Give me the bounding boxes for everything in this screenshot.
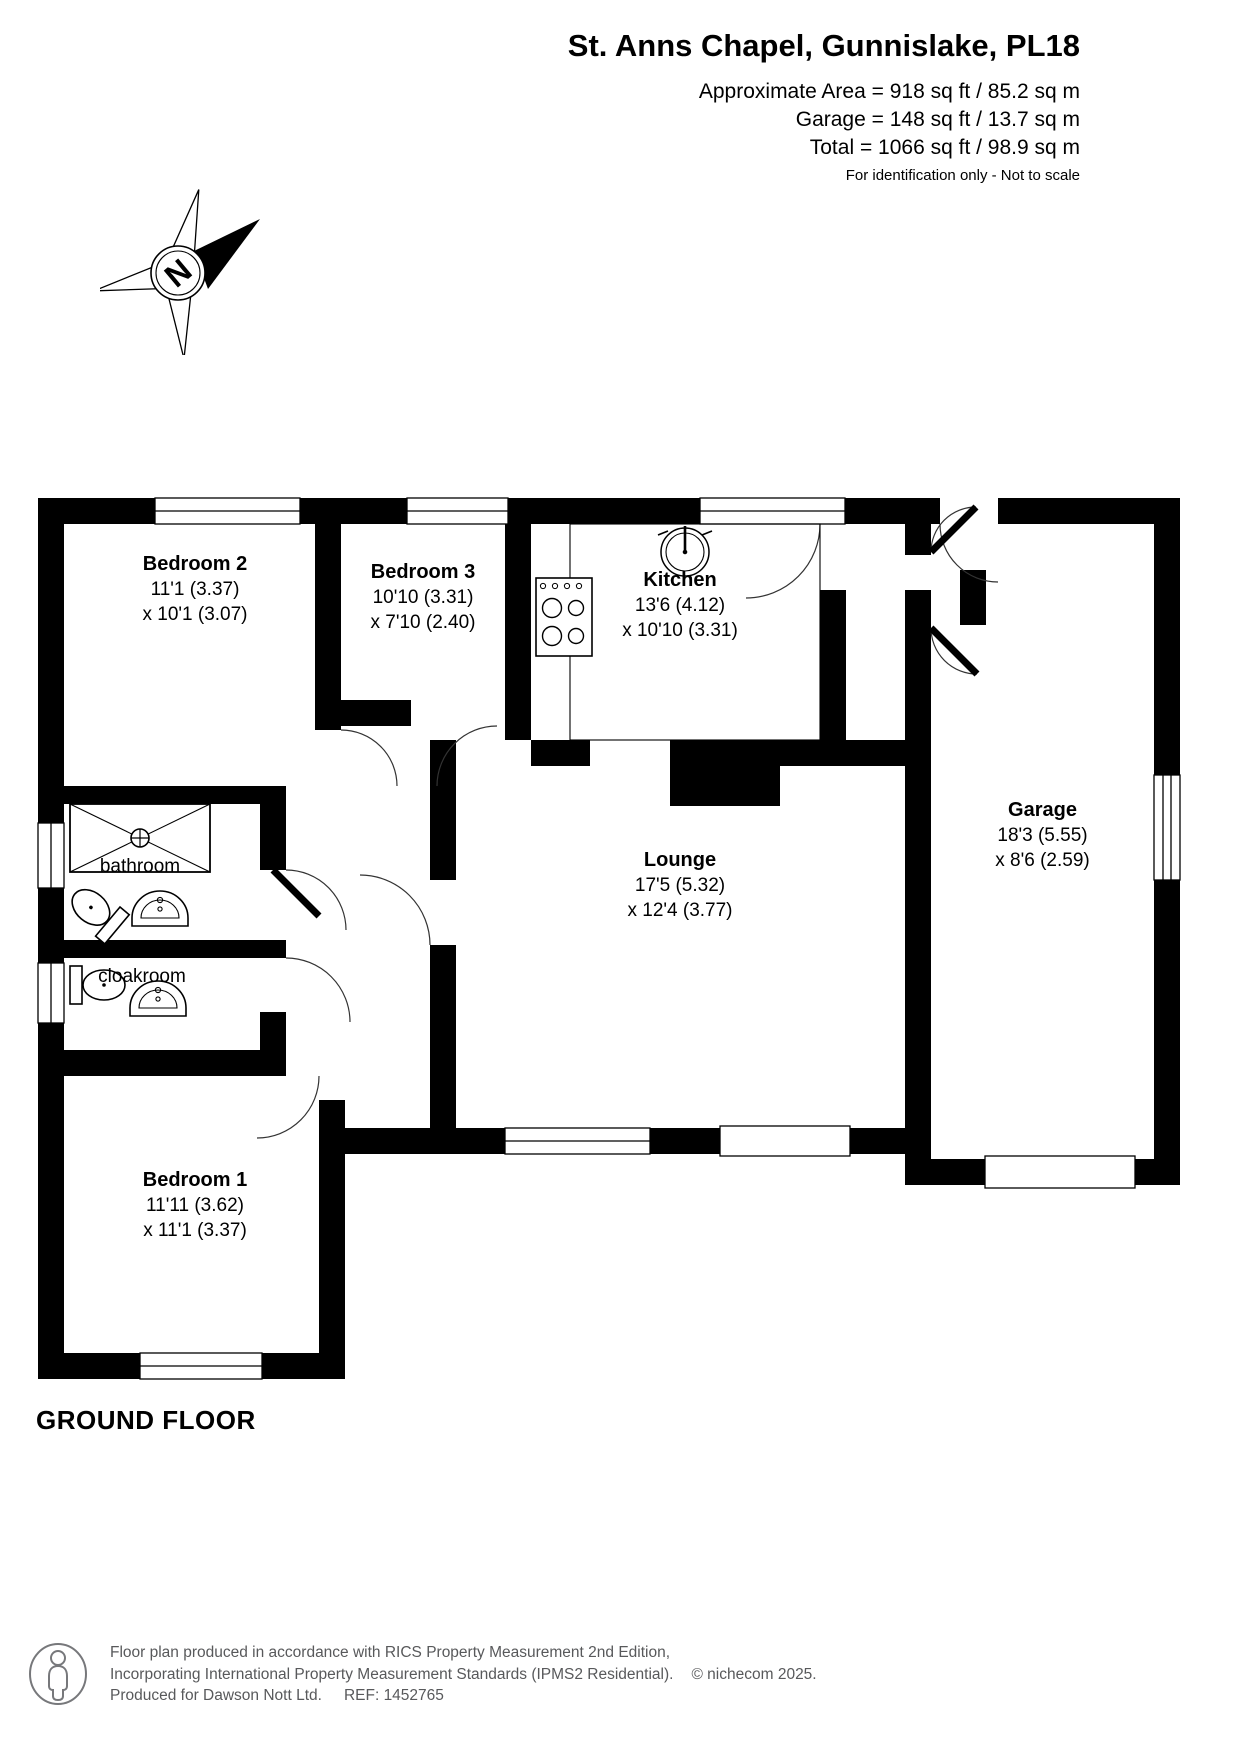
room-label-bathroom: bathroom (60, 856, 220, 878)
copyright: © nichecom 2025. (691, 1666, 816, 1683)
compass-point-west (100, 267, 157, 301)
window (505, 1128, 650, 1154)
compass-icon: N (100, 185, 270, 355)
garage-area: Garage = 148 sq ft / 13.7 sq m (380, 106, 1080, 134)
room-label-lounge: Lounge 17'5 (5.32) x 12'4 (3.77) (540, 848, 820, 923)
compass-point-north (173, 187, 209, 252)
door-arc (257, 1076, 319, 1138)
room-label-kitchen: Kitchen 13'6 (4.12) x 10'10 (3.31) (550, 568, 810, 643)
room-label-cloakroom: cloakroom (62, 966, 222, 988)
total-area: Total = 1066 sq ft / 98.9 sq m (380, 134, 1080, 162)
room-label-bedroom2: Bedroom 2 11'1 (3.37) x 10'1 (3.07) (75, 552, 315, 627)
floor-label: GROUND FLOOR (36, 1405, 256, 1436)
room-label-bedroom3: Bedroom 3 10'10 (3.31) x 7'10 (2.40) (313, 560, 533, 635)
window (407, 498, 508, 524)
floorplan-sheet: St. Anns Chapel, Gunnislake, PL18 Approx… (0, 0, 1241, 1755)
reference-number: REF: 1452765 (344, 1687, 444, 1704)
room-label-bedroom1: Bedroom 1 11'11 (3.62) x 11'1 (3.37) (75, 1168, 315, 1243)
header: St. Anns Chapel, Gunnislake, PL18 Approx… (380, 28, 1080, 184)
compass-point-south (169, 296, 195, 355)
scale-disclaimer: For identification only - Not to scale (380, 167, 1080, 184)
door-leaf (931, 628, 977, 674)
door-arc (360, 875, 430, 945)
footer-line3: Produced for Dawson Nott Ltd.REF: 145276… (110, 1685, 817, 1707)
room-label-garage: Garage 18'3 (5.55) x 8'6 (2.59) (920, 798, 1165, 873)
footer-text: Floor plan produced in accordance with R… (110, 1642, 817, 1707)
door-arc (286, 958, 350, 1022)
toilet-icon (63, 879, 130, 943)
door-arc (286, 870, 346, 930)
person-icon (28, 1642, 90, 1706)
patio-door (720, 1126, 850, 1156)
window (155, 498, 300, 524)
footer: Floor plan produced in accordance with R… (28, 1642, 1108, 1707)
basin-icon (132, 891, 188, 926)
garage-door (985, 1156, 1135, 1188)
approximate-area: Approximate Area = 918 sq ft / 85.2 sq m (380, 78, 1080, 106)
page-title: St. Anns Chapel, Gunnislake, PL18 (380, 28, 1080, 64)
door-leaf (273, 870, 319, 916)
footer-line1: Floor plan produced in accordance with R… (110, 1642, 817, 1664)
footer-line2: Incorporating International Property Mea… (110, 1664, 817, 1686)
window (140, 1353, 262, 1379)
window (38, 963, 64, 1023)
window (700, 498, 845, 524)
floor-plan: Bedroom 2 11'1 (3.37) x 10'1 (3.07) Bedr… (30, 440, 1210, 1390)
area-summary: Approximate Area = 918 sq ft / 85.2 sq m… (380, 78, 1080, 162)
door-arc (341, 730, 397, 786)
